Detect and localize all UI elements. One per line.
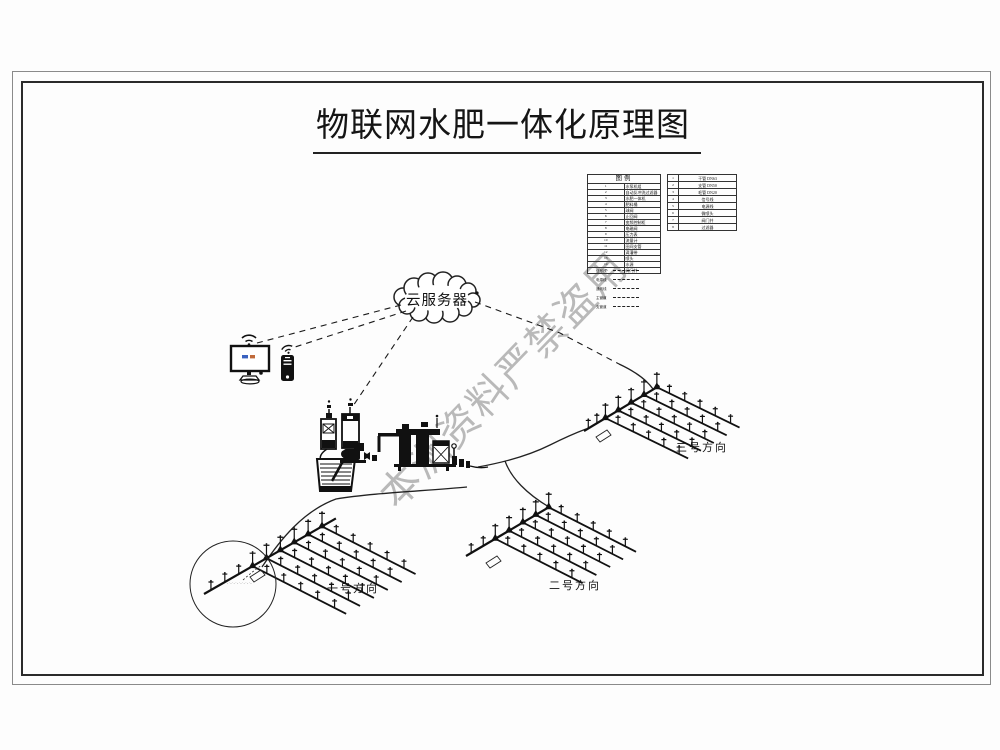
legend-table-secondary: 1干管 DN632支管 DN503毛管 DN204信号线5电源线6微喷头7阀门井…	[667, 174, 737, 231]
schematic-drawing	[0, 0, 1000, 750]
linetype-row: 支管道	[596, 302, 639, 311]
linetype-row: 主管道	[596, 293, 639, 302]
legend-secondary-rows: 1干管 DN632支管 DN503毛管 DN204信号线5电源线6微喷头7阀门井…	[668, 175, 737, 231]
field-2-label: 二号方向	[549, 577, 601, 593]
linetype-row: 信号线	[596, 266, 639, 275]
dashed-line-sample	[613, 306, 639, 307]
monitor-icon	[231, 346, 269, 384]
wifi-icon	[242, 335, 256, 346]
cloud-server-label: 云服务器	[403, 289, 471, 310]
field-2	[466, 492, 636, 583]
linetype-row: 通讯线	[596, 284, 639, 293]
field-1-label: 一号方向	[327, 580, 379, 596]
pump-filter-unit	[340, 415, 488, 471]
wifi-icon	[281, 344, 294, 355]
dashed-line-sample	[613, 279, 639, 280]
dashed-line-sample	[613, 270, 639, 271]
smartphone-icon	[281, 355, 294, 381]
legend-table-main: 图例 1水泵机组2自动反冲洗过滤器3水肥一体机4肥料桶5球阀6止回阀7变频控制柜…	[587, 174, 661, 274]
legend-main-rows: 1水泵机组2自动反冲洗过滤器3水肥一体机4肥料桶5球阀6止回阀7变频控制柜8电磁…	[588, 184, 661, 274]
detail-annotation: -·-·-·-·-·-·-·-	[227, 581, 252, 585]
dashed-line-sample	[613, 297, 639, 298]
legend-linetypes: 信号线 电源线 通讯线 主管道 支管道	[596, 266, 639, 311]
legend-header: 图例	[588, 175, 661, 184]
field-1	[204, 511, 416, 614]
dashed-line-sample	[613, 288, 639, 289]
field-3-label: 三号方向	[676, 439, 728, 455]
linetype-row: 电源线	[596, 275, 639, 284]
sprinkler-fields	[204, 372, 740, 614]
